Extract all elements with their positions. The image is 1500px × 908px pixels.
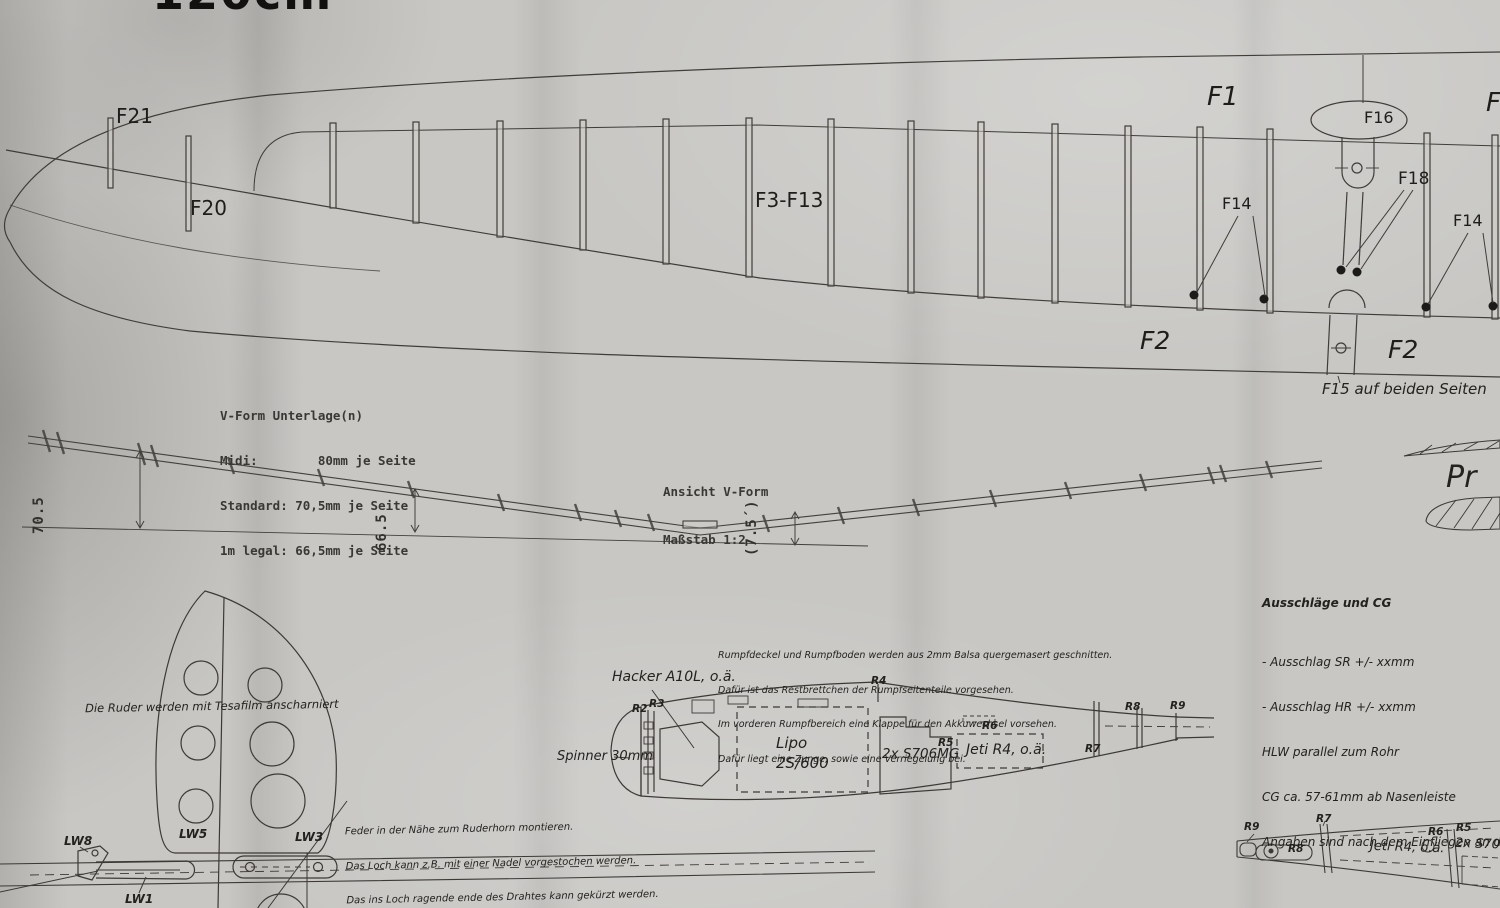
label-r6: R6 <box>982 721 997 732</box>
label-f2-right: F2 <box>1388 337 1418 363</box>
vform-shim-table: V-Form Unterlage(n) Midi: 80mm je Seite … <box>220 378 416 588</box>
label-r7: R7 <box>1085 744 1100 755</box>
cg-note-line: HLW parallel zum Rohr <box>1262 745 1500 760</box>
label-top-r8: R8 <box>1288 844 1303 855</box>
label-motor: Hacker A10L, o.ä. <box>612 670 736 685</box>
label-lw3: LW3 <box>295 831 323 844</box>
spring-note-line: Das Loch kann z.B. mit einer Nadel vorge… <box>346 850 863 872</box>
dim-70-5: 70.5 <box>31 496 47 534</box>
label-f18: F18 <box>1398 171 1429 189</box>
cg-note-line: - Ausschlag SR +/- xxmm <box>1262 655 1500 670</box>
label-r5: R5 <box>938 738 953 749</box>
label-f1-center: F1 <box>1207 84 1239 111</box>
wing-ribs <box>330 118 1498 319</box>
label-f15-note: F15 auf beiden Seiten <box>1322 382 1487 398</box>
label-r9: R9 <box>1170 701 1185 712</box>
label-profile-fragment: Pr <box>1446 462 1476 494</box>
glider-plan-scan: 120cm F21 F20 F3-F13 F1 F1 F16 F18 F14 F… <box>0 0 1500 908</box>
label-f16: F16 <box>1364 110 1394 127</box>
vform-caption-line: Ansicht V-Form <box>663 484 768 500</box>
label-r3: R3 <box>649 699 664 710</box>
label-top-r9: R9 <box>1244 822 1259 833</box>
label-r4: R4 <box>871 676 886 687</box>
label-top-r7: R7 <box>1316 814 1331 825</box>
cg-notes-title: Ausschläge und CG <box>1262 596 1500 611</box>
battery-line1: Lipo <box>776 734 807 752</box>
cg-note-line: - Ausschlag HR +/- xxmm <box>1262 700 1500 715</box>
label-servos-side: 2x S706MG <box>882 747 959 761</box>
rib-marker-dots <box>1190 266 1498 312</box>
label-lw5: LW5 <box>179 828 207 841</box>
battery-line2: 2S/600 <box>776 754 829 772</box>
label-top-receiver: Jeti R4, o.ä. <box>1370 840 1445 856</box>
label-f3-f13: F3-F13 <box>755 190 823 211</box>
label-lw8: LW8 <box>64 835 92 848</box>
label-f14-inner: F14 <box>1222 196 1252 213</box>
label-spinner: Spinner 30mm <box>557 750 653 764</box>
vform-table-row: Standard: 70,5mm je Seite <box>220 498 416 513</box>
label-top-servos-fragment: 2x S706M <box>1455 837 1500 853</box>
dim-66-5: 66.5 <box>374 513 390 551</box>
cg-note-line: CG ca. 57-61mm ab Nasenleiste <box>1262 790 1500 805</box>
spring-notes: Feder in der Nähe zum Ruderhorn montiere… <box>344 793 864 908</box>
fuselage-note-line: Rumpfdeckel und Rumpfboden werden aus 2m… <box>718 650 1112 662</box>
spring-note-line: Feder in der Nähe zum Ruderhorn montiere… <box>345 816 862 838</box>
label-lw1: LW1 <box>125 893 153 906</box>
motor-outline <box>660 722 719 786</box>
label-f1-right: F1 <box>1486 90 1500 117</box>
fuselage-note-line: Im vorderen Rumpfbereich eine Klappe für… <box>718 719 1112 731</box>
spring-note-line: Das ins Loch ragende ende des Drahtes ka… <box>346 885 863 907</box>
label-receiver-side: Jeti R4, o.ä. <box>966 743 1046 758</box>
label-f14-outer: F14 <box>1453 213 1483 230</box>
fuselage-note-line: Dafür ist das Restbrettchen der Rumpfsei… <box>718 685 1112 697</box>
page-title-fragment: 120cm <box>152 0 333 20</box>
label-f20: F20 <box>190 198 227 219</box>
vform-table-title: V-Form Unterlage(n) <box>220 408 416 423</box>
label-f21: F21 <box>116 106 153 127</box>
label-f2-left: F2 <box>1140 328 1170 354</box>
label-r8: R8 <box>1125 702 1140 713</box>
wing-plan-drawing <box>4 52 1500 383</box>
vform-table-row: Midi: 80mm je Seite <box>220 453 416 468</box>
label-r2: R2 <box>632 704 647 715</box>
label-top-r5: R5 <box>1456 823 1471 834</box>
label-top-r6: R6 <box>1428 827 1443 838</box>
dim-7-5: (7.5´) <box>744 499 760 556</box>
label-battery: Lipo2S/600 <box>776 733 829 773</box>
